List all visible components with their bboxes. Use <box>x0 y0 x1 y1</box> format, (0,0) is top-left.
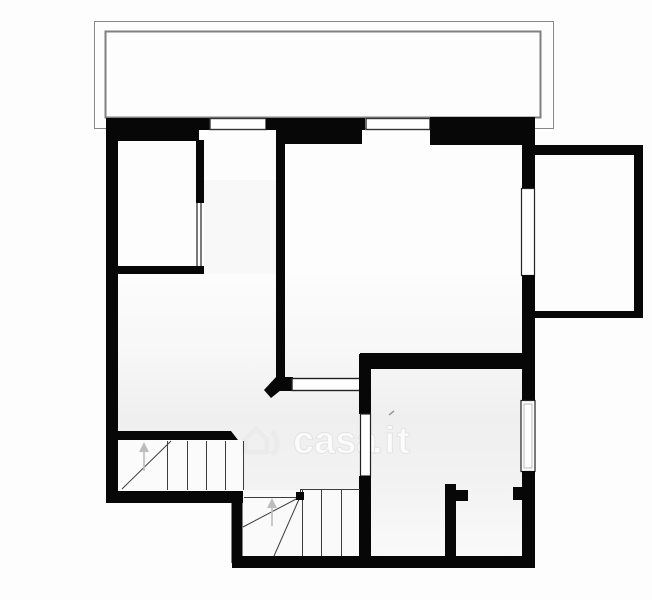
svg-text:.it: .it <box>372 420 412 462</box>
